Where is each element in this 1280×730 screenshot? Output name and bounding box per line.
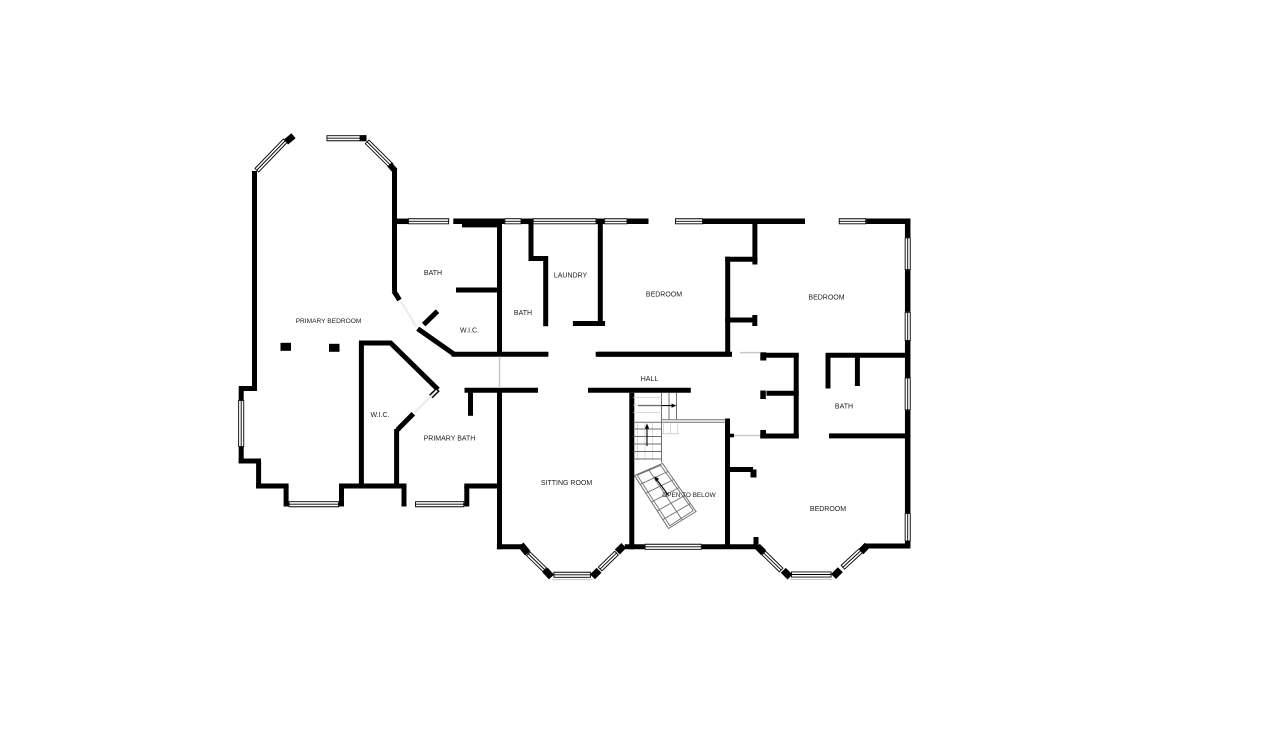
svg-text:OPEN TO BELOW: OPEN TO BELOW: [662, 492, 716, 499]
svg-text:BEDROOM: BEDROOM: [810, 506, 846, 513]
svg-text:SITTING ROOM: SITTING ROOM: [541, 480, 593, 487]
svg-text:LAUNDRY: LAUNDRY: [554, 273, 588, 280]
svg-text:PRIMARY BEDROOM: PRIMARY BEDROOM: [296, 318, 362, 325]
svg-text:W.I.C.: W.I.C.: [460, 328, 479, 335]
svg-text:BATH: BATH: [835, 404, 853, 411]
svg-text:HALL: HALL: [641, 376, 659, 383]
svg-text:BEDROOM: BEDROOM: [646, 292, 682, 299]
svg-text:BEDROOM: BEDROOM: [808, 295, 844, 302]
svg-text:BATH: BATH: [514, 310, 532, 317]
svg-text:W.I.C.: W.I.C.: [370, 412, 389, 419]
svg-text:PRIMARY BATH: PRIMARY BATH: [424, 436, 476, 443]
svg-text:BATH: BATH: [424, 270, 442, 277]
